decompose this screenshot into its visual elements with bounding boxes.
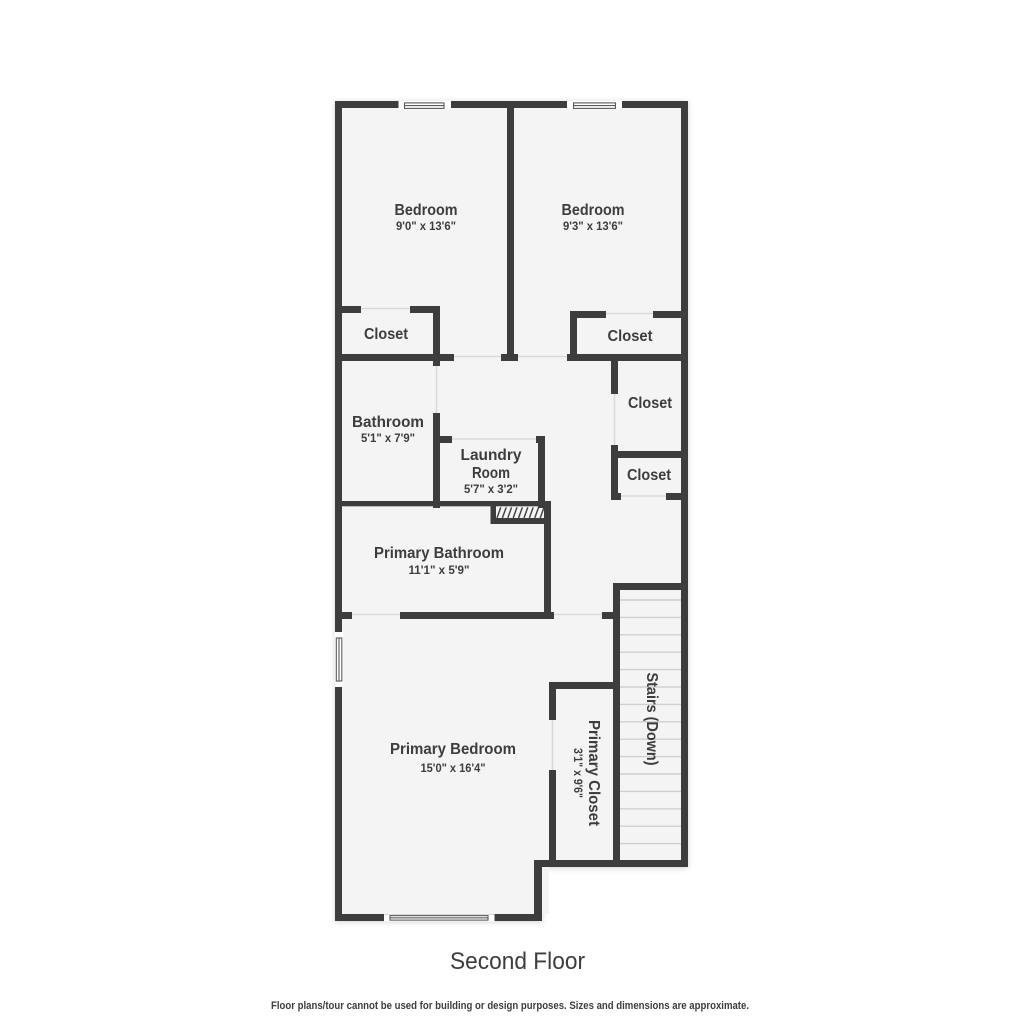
svg-text:9'0" x 13'6": 9'0" x 13'6" [396, 219, 456, 233]
svg-text:Primary Bedroom: Primary Bedroom [390, 741, 516, 758]
svg-text:9'3" x 13'6": 9'3" x 13'6" [563, 219, 623, 233]
svg-text:11'1" x 5'9": 11'1" x 5'9" [409, 563, 470, 577]
svg-text:Bathroom: Bathroom [352, 414, 424, 431]
svg-text:Primary Bathroom: Primary Bathroom [374, 545, 504, 562]
svg-text:Closet: Closet [628, 395, 673, 412]
svg-text:Closet: Closet [627, 467, 672, 484]
svg-text:5'7" x 3'2": 5'7" x 3'2" [464, 482, 518, 496]
svg-text:Bedroom: Bedroom [395, 202, 458, 219]
svg-text:Stairs (Down): Stairs (Down) [643, 673, 660, 766]
svg-text:Primary Closet: Primary Closet [585, 720, 602, 827]
svg-text:Second Floor: Second Floor [450, 948, 585, 975]
svg-text:5'1" x 7'9": 5'1" x 7'9" [361, 431, 415, 445]
svg-text:15'0" x 16'4": 15'0" x 16'4" [421, 761, 486, 775]
svg-text:Room: Room [472, 465, 510, 482]
svg-text:Floor plans/tour cannot be use: Floor plans/tour cannot be used for buil… [271, 1000, 749, 1012]
svg-text:Closet: Closet [608, 328, 654, 345]
svg-text:Laundry: Laundry [461, 447, 522, 464]
svg-text:Closet: Closet [364, 326, 409, 343]
svg-text:3'1" x 9'6": 3'1" x 9'6" [571, 748, 585, 798]
svg-text:Bedroom: Bedroom [562, 202, 625, 219]
